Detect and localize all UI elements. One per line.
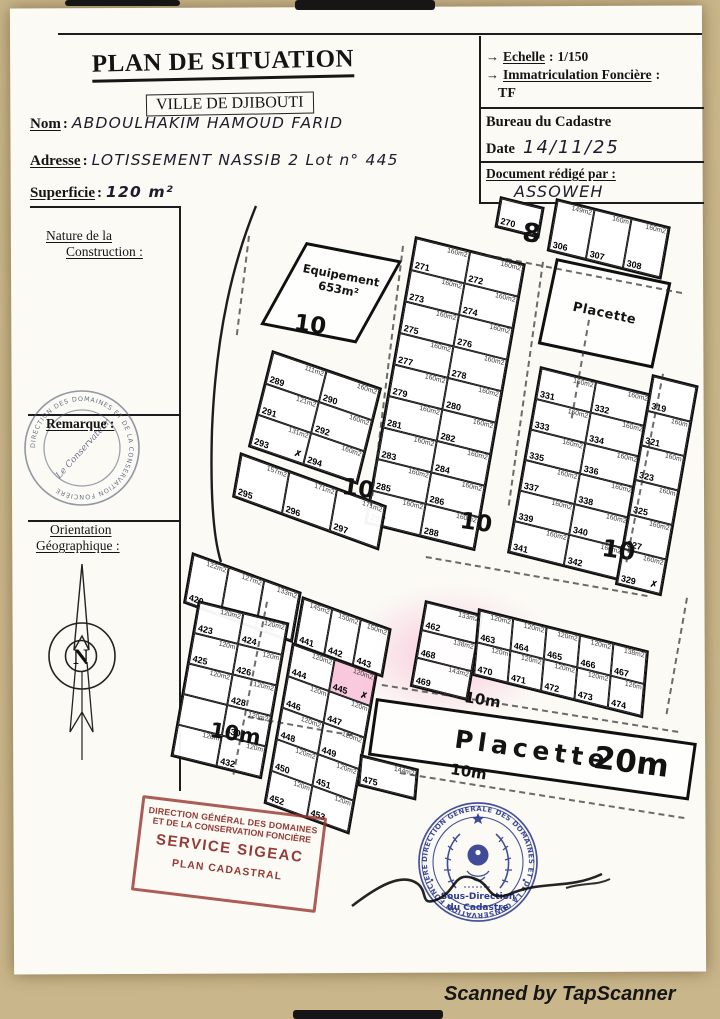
conservateur-stamp: DIRECTION DES DOMAINES ET DE LA CONSERVA… [16, 382, 148, 514]
scanner-watermark: Scanned by TapScanner [444, 983, 676, 1006]
remarque-label: Remarque : [46, 416, 114, 432]
